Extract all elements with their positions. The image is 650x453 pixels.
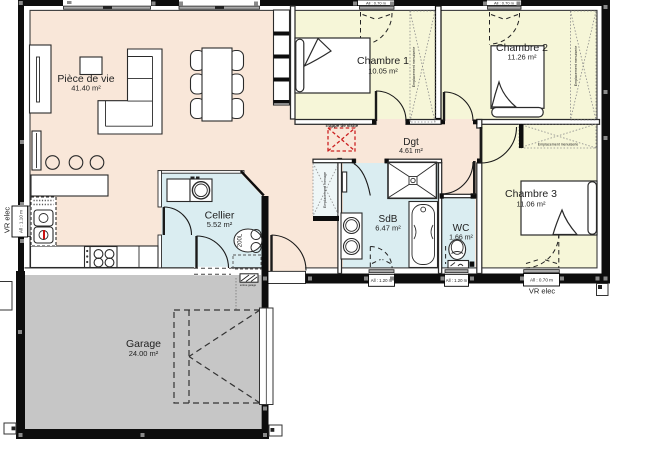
svg-text:Emplacement menuiserie: Emplacement menuiserie: [538, 143, 579, 147]
svg-text:41.40 m²: 41.40 m²: [71, 84, 101, 93]
svg-text:11.26 m²: 11.26 m²: [507, 53, 537, 62]
svg-text:All : 1.20 m: All : 1.20 m: [371, 278, 393, 283]
svg-text:Chambre 1: Chambre 1: [357, 55, 409, 67]
svg-text:5.52 m²: 5.52 m²: [207, 220, 233, 229]
svg-text:All : 0.70 m: All : 0.70 m: [530, 278, 553, 283]
svg-text:WC: WC: [453, 223, 470, 234]
svg-text:Emplacement menage: Emplacement menage: [323, 172, 327, 208]
svg-text:VR elec: VR elec: [529, 287, 556, 296]
svg-text:All : 0.70 m: All : 0.70 m: [494, 0, 515, 5]
svg-text:200L: 200L: [238, 233, 244, 247]
svg-text:4.61 m²: 4.61 m²: [399, 148, 423, 155]
svg-text:11.06 m²: 11.06 m²: [516, 200, 546, 209]
svg-text:entree garage: entree garage: [240, 283, 257, 287]
svg-text:Emplacement menuiserie: Emplacement menuiserie: [574, 46, 578, 87]
svg-text:24.00 m²: 24.00 m²: [129, 349, 159, 358]
svg-text:All : 1.20 m: All : 1.20 m: [446, 278, 468, 283]
svg-text:1.66 m²: 1.66 m²: [449, 235, 473, 242]
svg-text:10.05 m²: 10.05 m²: [368, 67, 398, 76]
svg-text:6.47 m²: 6.47 m²: [375, 224, 401, 233]
svg-text:All : 0.70 m: All : 0.70 m: [366, 0, 387, 5]
svg-text:Dgt: Dgt: [403, 137, 419, 148]
svg-text:Chambre 3: Chambre 3: [505, 188, 557, 200]
svg-text:Trappe de visite: Trappe de visite: [325, 123, 359, 128]
svg-text:All : 1.10 m: All : 1.10 m: [19, 210, 24, 233]
svg-text:VR elec: VR elec: [3, 207, 12, 234]
svg-text:Emplacement menuiserie: Emplacement menuiserie: [412, 47, 416, 88]
